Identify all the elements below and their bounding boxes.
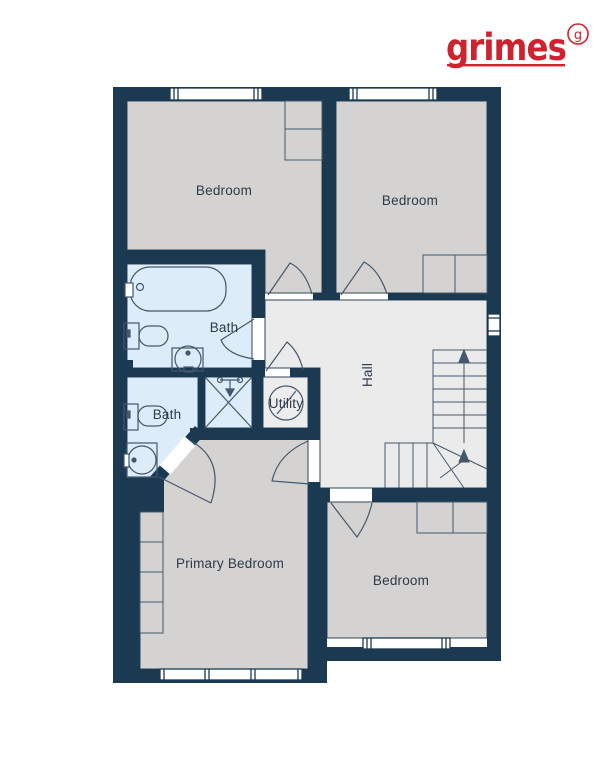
logo-mark: g	[574, 28, 582, 43]
exterior-wall-left	[113, 87, 127, 683]
window-primary-bay	[160, 669, 302, 680]
logo-underline	[447, 64, 565, 66]
window-bedroom1	[170, 88, 262, 100]
wall-bedroom-divider	[322, 87, 336, 300]
room-label-bedroom-3: Bedroom	[373, 573, 429, 588]
wall-hall-top-mid	[313, 293, 340, 300]
wall-bath1-step	[113, 360, 133, 377]
room-label-bedroom-2: Bedroom	[382, 193, 438, 208]
wall-shower-utility-divider	[252, 377, 263, 428]
room-bedroom-3	[327, 502, 487, 638]
floor-plan: Bedroom Bedroom Bath Bath Utility Hall P…	[0, 0, 613, 768]
window-hall-right	[488, 314, 500, 336]
exterior-wall-right	[487, 87, 501, 661]
wall-left-thick-lower	[127, 512, 140, 683]
logo-text: grimes	[446, 26, 566, 69]
room-label-utility: Utility	[269, 396, 303, 411]
room-label-bath-1: Bath	[210, 320, 239, 335]
wall-hall-top-right	[388, 293, 487, 300]
room-label-primary-bedroom: Primary Bedroom	[176, 556, 284, 571]
wall-block-bath2-bottom	[127, 478, 164, 512]
window-bedroom3	[363, 638, 450, 649]
wall-primary-bedroom3-divider	[308, 502, 327, 683]
logo: grimes g	[446, 24, 588, 69]
room-label-bath-2: Bath	[153, 407, 182, 422]
room-label-bedroom-1: Bedroom	[196, 183, 252, 198]
wall-above-primary	[190, 428, 320, 440]
wall-bath2-shower-divider	[198, 377, 205, 428]
wall-bedroom3-top-right	[372, 488, 487, 502]
wall-bedroom1-bottom	[113, 250, 265, 264]
room-label-hall: Hall	[360, 363, 375, 387]
wall-bedroom3-top-left	[308, 488, 330, 502]
window-bedroom2	[349, 88, 437, 100]
wall-bath1-right-upper	[252, 250, 265, 318]
floor-plan-page: Bedroom Bedroom Bath Bath Utility Hall P…	[0, 0, 613, 768]
